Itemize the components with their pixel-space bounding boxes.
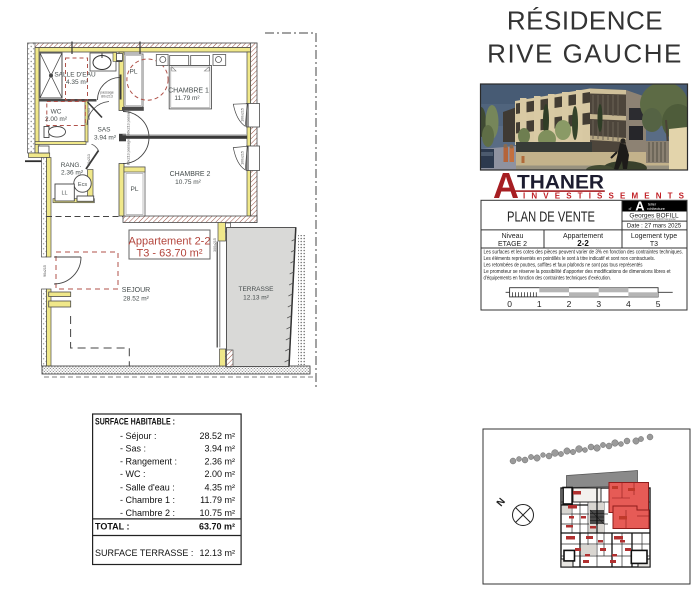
svg-text:WC: WC [51,109,62,116]
svg-text:d'équipements en fonction des: d'équipements en fonction des contrainte… [484,276,612,282]
svg-text:4.35 m²: 4.35 m² [66,79,89,86]
svg-text:SALLE D'EAU: SALLE D'EAU [54,72,96,79]
svg-text:300x215: 300x215 [213,238,217,252]
svg-text:2.36 m²: 2.36 m² [204,456,235,466]
svg-text:1: 1 [537,299,542,309]
svg-text:Logement type: Logement type [631,233,677,240]
svg-text:SEJOUR: SEJOUR [122,287,150,294]
svg-text:- Chambre 1 :: - Chambre 1 : [120,495,175,505]
svg-text:2.00 m²: 2.00 m² [45,116,68,123]
svg-text:3: 3 [596,299,601,309]
svg-text:Appartement 2-2: Appartement 2-2 [129,236,211,248]
svg-text:10.75 m²: 10.75 m² [175,179,201,186]
svg-text:2-2: 2-2 [577,239,589,248]
svg-text:ETAGE 2: ETAGE 2 [498,241,527,248]
svg-text:- Sas :: - Sas : [120,443,146,453]
svg-text:2.36 m²: 2.36 m² [61,169,84,176]
svg-text:Le promoteur se réserve la pos: Le promoteur se réserve la possibilité d… [484,269,672,275]
svg-text:90x215: 90x215 [43,265,47,277]
svg-text:100x215: 100x215 [241,151,245,165]
svg-text:Les surfaces et les cotes des: Les surfaces et les cotes des pièces peu… [484,250,684,256]
svg-text:- Chambre 2 :: - Chambre 2 : [120,508,175,518]
svg-text:11.79 m²: 11.79 m² [174,95,200,102]
svg-text:TERRASSE: TERRASSE [238,286,274,293]
svg-text:TOTAL :: TOTAL : [95,522,130,532]
svg-text:SURFACE HABITABLE :: SURFACE HABITABLE : [95,417,175,427]
svg-text:Ecs: Ecs [78,182,87,188]
svg-text:- Rangement :: - Rangement : [120,456,177,466]
svg-text:5: 5 [656,299,661,309]
svg-text:4.35 m²: 4.35 m² [204,483,235,493]
svg-text:28.52 m²: 28.52 m² [123,296,149,303]
svg-text:- Séjour :: - Séjour : [120,431,157,441]
svg-text:LL: LL [61,191,67,197]
svg-text:Les éléments représentés en po: Les éléments représentés en pointillés l… [484,256,656,262]
svg-text:PL: PL [130,69,138,76]
svg-text:SURFACE TERRASSE :: SURFACE TERRASSE : [95,548,193,558]
svg-text:3.94 m²: 3.94 m² [204,443,235,453]
svg-text:d': d' [629,207,632,211]
svg-text:80x203: 80x203 [87,108,91,120]
svg-text:Date : 27 mars 2025: Date : 27 mars 2025 [627,224,682,230]
svg-text:RIVE GAUCHE: RIVE GAUCHE [487,39,683,69]
svg-text:0: 0 [507,299,512,309]
svg-text:CHAMBRE 2: CHAMBRE 2 [170,171,211,178]
svg-text:RÉSIDENCE: RÉSIDENCE [507,6,663,36]
svg-text:CHAMBRE 1: CHAMBRE 1 [168,88,209,95]
svg-text:PL: PL [131,186,139,193]
svg-text:12.13 m²: 12.13 m² [243,295,269,302]
svg-text:A: A [635,199,645,214]
svg-text:T3 - 63.70 m²: T3 - 63.70 m² [136,248,202,260]
svg-text:telier: telier [648,203,657,207]
svg-text:12.13 m²: 12.13 m² [199,548,235,558]
svg-text:RANG.: RANG. [61,162,82,169]
svg-text:PLAN DE VENTE: PLAN DE VENTE [507,209,595,226]
svg-text:Les retombées de poutres, soff: Les retombées de poutres, soffites et fa… [484,263,643,269]
svg-text:SAS: SAS [97,127,111,134]
svg-text:2: 2 [567,299,572,309]
svg-text:rchitecture: rchitecture [647,207,665,211]
svg-text:3.94 m²: 3.94 m² [94,135,117,142]
svg-text:80x213: 80x213 [101,95,113,99]
svg-text:T3: T3 [650,241,658,248]
svg-text:8 avenue des Thermes 34000 Mon: 8 avenue des Thermes 34000 Montpellier [632,218,676,221]
svg-text:Niveau: Niveau [502,233,524,240]
svg-text:11.79 m²: 11.79 m² [200,495,235,505]
svg-text:10.75 m²: 10.75 m² [199,508,235,518]
svg-text:80x213: 80x213 [87,154,91,166]
svg-text:63.70 m²: 63.70 m² [199,522,235,532]
svg-text:80x213 passage: 80x213 passage [127,109,131,135]
svg-text:4: 4 [626,299,631,309]
svg-text:28.52 m²: 28.52 m² [199,431,235,441]
svg-text:2.00 m²: 2.00 m² [204,469,235,479]
svg-text:100x215: 100x215 [241,108,245,122]
svg-text:80x213 passage: 80x213 passage [127,139,131,165]
svg-text:- WC :: - WC : [120,469,146,479]
svg-text:- Salle d'eau :: - Salle d'eau : [120,483,175,493]
